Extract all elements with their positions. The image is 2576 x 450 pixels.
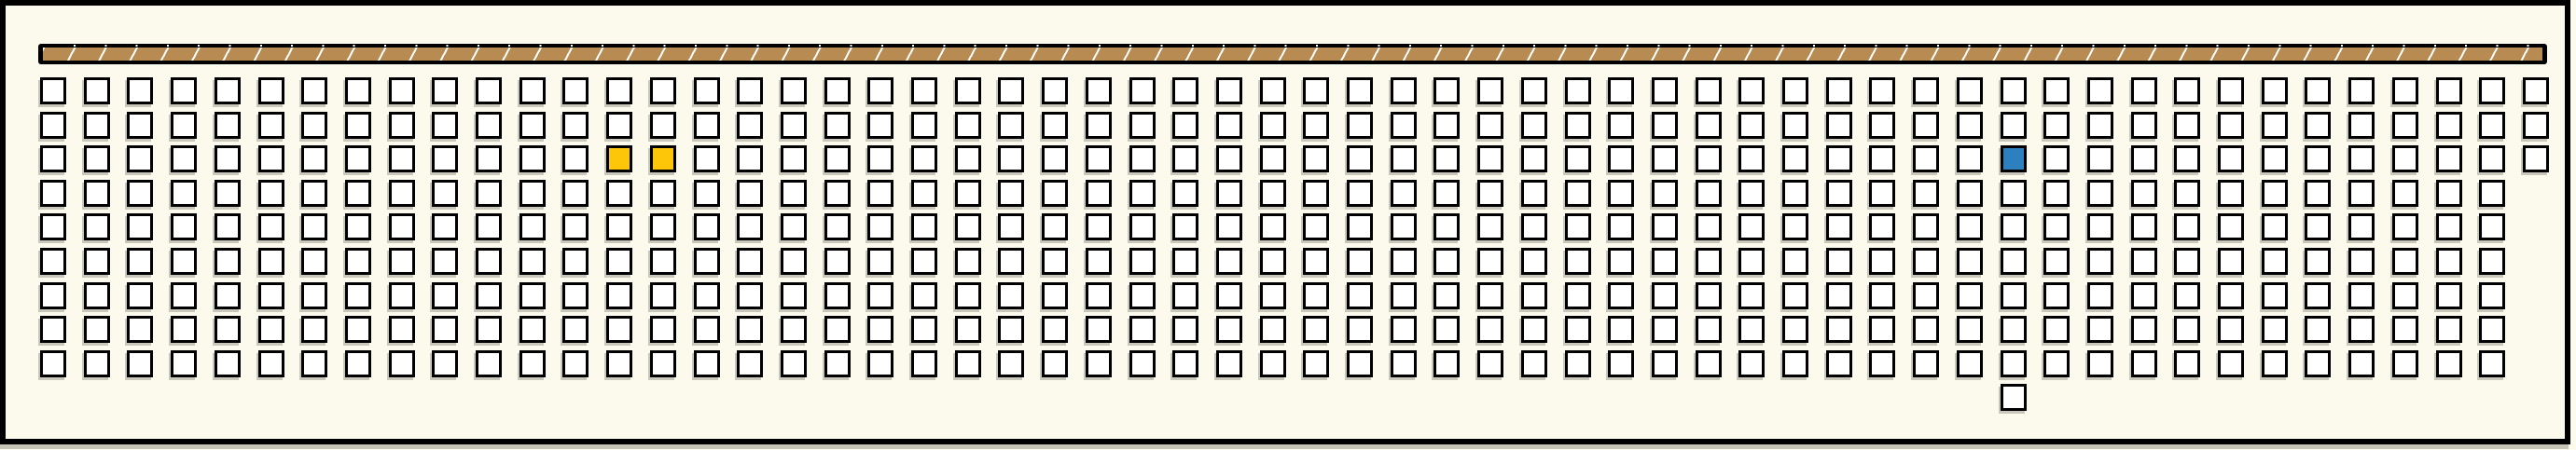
seat[interactable] (345, 145, 371, 172)
seat[interactable] (40, 316, 66, 343)
seat[interactable] (1913, 248, 1939, 275)
seat[interactable] (955, 316, 981, 343)
seat[interactable] (127, 180, 153, 207)
seat[interactable] (2479, 248, 2505, 275)
seat[interactable] (1042, 282, 1068, 309)
seat[interactable] (1565, 316, 1591, 343)
seat[interactable] (258, 112, 284, 139)
seat[interactable] (1347, 77, 1373, 104)
seat[interactable] (955, 112, 981, 139)
seat[interactable] (1086, 316, 1112, 343)
seat[interactable] (345, 180, 371, 207)
seat[interactable] (40, 77, 66, 104)
seat[interactable] (1433, 248, 1460, 275)
seat[interactable] (2479, 213, 2505, 240)
seat[interactable] (2001, 248, 2027, 275)
seat[interactable] (519, 282, 546, 309)
seat[interactable] (84, 180, 110, 207)
seat[interactable] (781, 77, 807, 104)
seat[interactable] (301, 282, 327, 309)
seat[interactable] (2392, 180, 2418, 207)
seat[interactable] (824, 145, 851, 172)
seat[interactable] (476, 213, 502, 240)
seat[interactable] (2479, 180, 2505, 207)
seat[interactable] (2087, 180, 2113, 207)
seat[interactable] (2348, 180, 2375, 207)
seat[interactable] (2043, 145, 2070, 172)
seat[interactable] (1782, 145, 1808, 172)
seat[interactable] (867, 316, 893, 343)
seat[interactable] (562, 350, 589, 377)
seat[interactable] (1477, 145, 1503, 172)
seat[interactable] (606, 77, 632, 104)
seat[interactable] (345, 282, 371, 309)
seat[interactable] (84, 248, 110, 275)
seat[interactable] (2043, 77, 2070, 104)
seat[interactable] (2001, 384, 2027, 411)
seat[interactable] (1303, 112, 1329, 139)
seat[interactable] (2392, 145, 2418, 172)
seat[interactable] (2131, 316, 2157, 343)
seat[interactable] (562, 77, 589, 104)
seat[interactable] (2218, 350, 2244, 377)
seat[interactable] (1696, 180, 1722, 207)
seat[interactable] (562, 145, 589, 172)
seat[interactable] (258, 145, 284, 172)
seat[interactable] (1652, 282, 1678, 309)
seat[interactable] (40, 282, 66, 309)
seat[interactable] (2218, 248, 2244, 275)
seat[interactable] (1086, 213, 1112, 240)
seat[interactable] (2436, 112, 2462, 139)
seat[interactable] (2305, 180, 2331, 207)
seat[interactable] (1782, 77, 1808, 104)
seat[interactable] (2262, 213, 2288, 240)
seat[interactable] (2305, 77, 2331, 104)
seat[interactable] (2523, 112, 2549, 139)
seat[interactable] (476, 145, 502, 172)
seat[interactable] (1172, 213, 1198, 240)
seat[interactable] (650, 248, 676, 275)
seat[interactable] (215, 350, 241, 377)
seat[interactable] (40, 248, 66, 275)
seat[interactable] (258, 77, 284, 104)
seat[interactable] (2001, 282, 2027, 309)
seat[interactable] (998, 180, 1024, 207)
seat[interactable] (1042, 213, 1068, 240)
seat[interactable] (2087, 213, 2113, 240)
seat[interactable] (1652, 112, 1678, 139)
seat[interactable] (432, 282, 458, 309)
seat[interactable] (781, 316, 807, 343)
seat[interactable] (1172, 248, 1198, 275)
seat[interactable] (1565, 145, 1591, 172)
seat[interactable] (1696, 316, 1722, 343)
seat[interactable] (2001, 316, 2027, 343)
seat[interactable] (1129, 77, 1156, 104)
seat[interactable] (1347, 145, 1373, 172)
seat[interactable] (2087, 350, 2113, 377)
seat[interactable] (1086, 248, 1112, 275)
seat[interactable] (1608, 112, 1634, 139)
seat[interactable] (1129, 112, 1156, 139)
seat[interactable] (1172, 77, 1198, 104)
seat[interactable] (258, 350, 284, 377)
seat[interactable] (1433, 77, 1460, 104)
seat[interactable] (2218, 77, 2244, 104)
seat[interactable] (1869, 213, 1895, 240)
seat[interactable] (171, 316, 197, 343)
seat[interactable] (606, 350, 632, 377)
seat[interactable] (84, 282, 110, 309)
seat[interactable] (694, 180, 720, 207)
seat[interactable] (2001, 180, 2027, 207)
seat[interactable] (2392, 316, 2418, 343)
seat[interactable] (1433, 145, 1460, 172)
seat[interactable] (171, 145, 197, 172)
seat[interactable] (1260, 316, 1286, 343)
seat[interactable] (2043, 180, 2070, 207)
seat[interactable] (1347, 213, 1373, 240)
seat[interactable] (1260, 248, 1286, 275)
seat[interactable] (258, 213, 284, 240)
seat[interactable] (1565, 213, 1591, 240)
seat[interactable] (1086, 112, 1112, 139)
seat[interactable] (911, 248, 937, 275)
seat[interactable] (2348, 145, 2375, 172)
seat[interactable] (1347, 350, 1373, 377)
seat[interactable] (215, 282, 241, 309)
seat[interactable] (2479, 350, 2505, 377)
seat[interactable] (1608, 316, 1634, 343)
seat[interactable] (1652, 145, 1678, 172)
seat[interactable] (1216, 145, 1242, 172)
seat[interactable] (2479, 145, 2505, 172)
seat[interactable] (1303, 248, 1329, 275)
seat[interactable] (955, 77, 981, 104)
seat[interactable] (824, 77, 851, 104)
seat[interactable] (1782, 350, 1808, 377)
seat[interactable] (2262, 112, 2288, 139)
seat[interactable] (2305, 350, 2331, 377)
seat[interactable] (1129, 282, 1156, 309)
seat[interactable] (40, 112, 66, 139)
seat[interactable] (650, 282, 676, 309)
seat[interactable] (2131, 112, 2157, 139)
seat[interactable] (911, 180, 937, 207)
seat[interactable] (1216, 350, 1242, 377)
seat[interactable] (432, 112, 458, 139)
seat[interactable] (1129, 350, 1156, 377)
seat[interactable] (389, 350, 415, 377)
seat[interactable] (1042, 248, 1068, 275)
seat[interactable] (2131, 248, 2157, 275)
seat[interactable] (1826, 112, 1852, 139)
seat[interactable] (1869, 248, 1895, 275)
seat[interactable] (2392, 112, 2418, 139)
seat[interactable] (1391, 248, 1417, 275)
seat[interactable] (2348, 316, 2375, 343)
seat[interactable] (1521, 282, 1547, 309)
seat[interactable] (2392, 77, 2418, 104)
seat[interactable] (1477, 282, 1503, 309)
seat[interactable] (127, 213, 153, 240)
seat[interactable] (1869, 112, 1895, 139)
seat[interactable] (2436, 145, 2462, 172)
seat[interactable] (1738, 248, 1765, 275)
seat[interactable] (2479, 316, 2505, 343)
seat[interactable] (2043, 248, 2070, 275)
seat[interactable] (867, 282, 893, 309)
seat[interactable] (1913, 180, 1939, 207)
seat[interactable] (650, 180, 676, 207)
seat[interactable] (694, 112, 720, 139)
seat[interactable] (606, 112, 632, 139)
seat[interactable] (1957, 350, 1983, 377)
seat[interactable] (301, 350, 327, 377)
seat[interactable] (1042, 112, 1068, 139)
seat[interactable] (1477, 248, 1503, 275)
seat[interactable] (1782, 282, 1808, 309)
seat[interactable] (781, 112, 807, 139)
seat[interactable] (2436, 213, 2462, 240)
seat[interactable] (2174, 350, 2200, 377)
seat[interactable] (1608, 180, 1634, 207)
seat[interactable] (301, 248, 327, 275)
seat[interactable] (1303, 316, 1329, 343)
seat[interactable] (2001, 145, 2027, 172)
seat[interactable] (84, 112, 110, 139)
seat[interactable] (1696, 112, 1722, 139)
seat[interactable] (215, 248, 241, 275)
seat[interactable] (215, 213, 241, 240)
seat[interactable] (432, 145, 458, 172)
seat[interactable] (694, 282, 720, 309)
seat[interactable] (2174, 145, 2200, 172)
seat[interactable] (2043, 282, 2070, 309)
seat[interactable] (1303, 77, 1329, 104)
seat[interactable] (1608, 77, 1634, 104)
seat[interactable] (258, 316, 284, 343)
seat[interactable] (2436, 350, 2462, 377)
seat[interactable] (1738, 112, 1765, 139)
seat[interactable] (1652, 77, 1678, 104)
seat[interactable] (1521, 77, 1547, 104)
seat[interactable] (2087, 282, 2113, 309)
seat[interactable] (2262, 282, 2288, 309)
seat[interactable] (824, 350, 851, 377)
seat[interactable] (2001, 112, 2027, 139)
seat[interactable] (694, 350, 720, 377)
seat[interactable] (1391, 350, 1417, 377)
seat[interactable] (2218, 180, 2244, 207)
seat[interactable] (1260, 77, 1286, 104)
seat[interactable] (606, 282, 632, 309)
seat[interactable] (1129, 213, 1156, 240)
seat[interactable] (911, 213, 937, 240)
seat[interactable] (1347, 180, 1373, 207)
seat[interactable] (824, 180, 851, 207)
seat[interactable] (867, 145, 893, 172)
seat[interactable] (40, 350, 66, 377)
seat[interactable] (171, 213, 197, 240)
seat[interactable] (737, 282, 763, 309)
seat[interactable] (650, 145, 676, 172)
seat[interactable] (1826, 316, 1852, 343)
seat[interactable] (1782, 213, 1808, 240)
seat[interactable] (1957, 248, 1983, 275)
seat[interactable] (737, 248, 763, 275)
seat[interactable] (2348, 282, 2375, 309)
seat[interactable] (1391, 316, 1417, 343)
seat[interactable] (2218, 145, 2244, 172)
seat[interactable] (2348, 112, 2375, 139)
seat[interactable] (301, 213, 327, 240)
seat[interactable] (1347, 282, 1373, 309)
seat[interactable] (127, 77, 153, 104)
seat[interactable] (1826, 145, 1852, 172)
seat[interactable] (2131, 213, 2157, 240)
seat[interactable] (1913, 282, 1939, 309)
seat[interactable] (432, 180, 458, 207)
seat[interactable] (1391, 112, 1417, 139)
seat[interactable] (911, 77, 937, 104)
seat[interactable] (2348, 213, 2375, 240)
seat[interactable] (1086, 180, 1112, 207)
seat[interactable] (345, 77, 371, 104)
seat[interactable] (301, 316, 327, 343)
seat[interactable] (345, 316, 371, 343)
seat[interactable] (867, 350, 893, 377)
seat[interactable] (2262, 77, 2288, 104)
seat[interactable] (1565, 180, 1591, 207)
seat[interactable] (1216, 316, 1242, 343)
seat[interactable] (2174, 112, 2200, 139)
seat[interactable] (2043, 350, 2070, 377)
seat[interactable] (824, 282, 851, 309)
seat[interactable] (781, 350, 807, 377)
seat[interactable] (2087, 248, 2113, 275)
seat[interactable] (1433, 316, 1460, 343)
seat[interactable] (1738, 350, 1765, 377)
seat[interactable] (1738, 282, 1765, 309)
seat[interactable] (1216, 248, 1242, 275)
seat[interactable] (432, 316, 458, 343)
seat[interactable] (562, 282, 589, 309)
seat[interactable] (2305, 248, 2331, 275)
seat[interactable] (781, 282, 807, 309)
seat[interactable] (40, 213, 66, 240)
seat[interactable] (2174, 248, 2200, 275)
seat[interactable] (737, 316, 763, 343)
seat[interactable] (127, 145, 153, 172)
seat[interactable] (737, 112, 763, 139)
seat[interactable] (2479, 282, 2505, 309)
seat[interactable] (40, 180, 66, 207)
seat[interactable] (1782, 112, 1808, 139)
seat[interactable] (606, 213, 632, 240)
seat[interactable] (911, 112, 937, 139)
seat[interactable] (1521, 180, 1547, 207)
seat[interactable] (1521, 145, 1547, 172)
seat[interactable] (127, 316, 153, 343)
seat[interactable] (1260, 213, 1286, 240)
seat[interactable] (1826, 180, 1852, 207)
seat[interactable] (432, 248, 458, 275)
seat[interactable] (1042, 350, 1068, 377)
seat[interactable] (127, 112, 153, 139)
seat[interactable] (519, 350, 546, 377)
seat[interactable] (2305, 213, 2331, 240)
seat[interactable] (2305, 282, 2331, 309)
seat[interactable] (1957, 180, 1983, 207)
seat[interactable] (1521, 316, 1547, 343)
seat[interactable] (2479, 77, 2505, 104)
seat[interactable] (1652, 316, 1678, 343)
seat[interactable] (40, 145, 66, 172)
seat[interactable] (2087, 316, 2113, 343)
seat[interactable] (1433, 112, 1460, 139)
seat[interactable] (606, 180, 632, 207)
seat[interactable] (2174, 180, 2200, 207)
seat[interactable] (389, 282, 415, 309)
seat[interactable] (1696, 213, 1722, 240)
seat[interactable] (1782, 180, 1808, 207)
seat[interactable] (1042, 145, 1068, 172)
seat[interactable] (867, 77, 893, 104)
seat[interactable] (84, 145, 110, 172)
seat[interactable] (1260, 112, 1286, 139)
seat[interactable] (955, 145, 981, 172)
seat[interactable] (345, 248, 371, 275)
seat[interactable] (824, 112, 851, 139)
seat[interactable] (1652, 350, 1678, 377)
seat[interactable] (1086, 77, 1112, 104)
seat[interactable] (606, 248, 632, 275)
seat[interactable] (1913, 213, 1939, 240)
seat[interactable] (1957, 145, 1983, 172)
seat[interactable] (2436, 180, 2462, 207)
seat[interactable] (781, 213, 807, 240)
seat[interactable] (1086, 145, 1112, 172)
seat[interactable] (2131, 282, 2157, 309)
seat[interactable] (215, 112, 241, 139)
seat[interactable] (2174, 77, 2200, 104)
seat[interactable] (519, 248, 546, 275)
seat[interactable] (562, 180, 589, 207)
seat[interactable] (519, 316, 546, 343)
seat[interactable] (1782, 316, 1808, 343)
seat[interactable] (1738, 316, 1765, 343)
seat[interactable] (781, 180, 807, 207)
seat[interactable] (1869, 282, 1895, 309)
seat[interactable] (476, 282, 502, 309)
seat[interactable] (2131, 350, 2157, 377)
seat[interactable] (432, 77, 458, 104)
seat[interactable] (998, 77, 1024, 104)
seat[interactable] (1129, 248, 1156, 275)
seat[interactable] (171, 180, 197, 207)
seat[interactable] (998, 350, 1024, 377)
seat[interactable] (2218, 282, 2244, 309)
seat[interactable] (1826, 248, 1852, 275)
seat[interactable] (2262, 248, 2288, 275)
seat[interactable] (258, 248, 284, 275)
seat[interactable] (476, 316, 502, 343)
seat[interactable] (1042, 316, 1068, 343)
seat[interactable] (2043, 316, 2070, 343)
seat[interactable] (2043, 112, 2070, 139)
